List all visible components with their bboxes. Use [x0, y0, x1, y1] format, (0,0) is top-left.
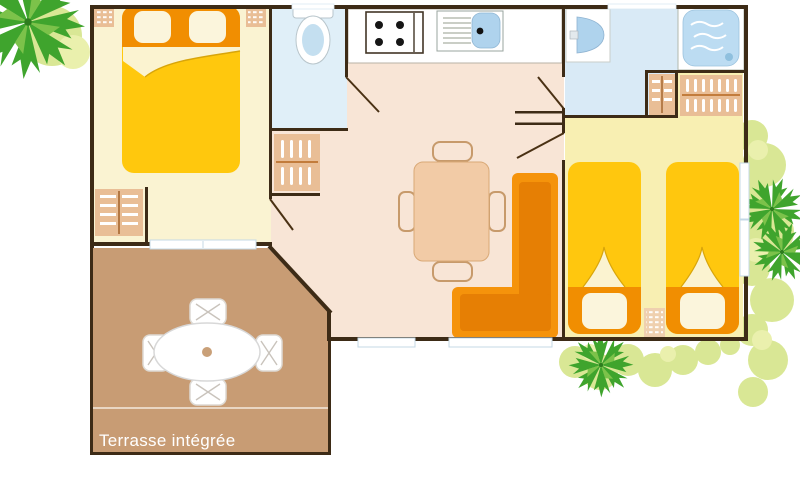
dresser: [95, 189, 143, 236]
twin-bed: [568, 162, 641, 334]
hall-wardrobe: [274, 134, 320, 191]
terrace-label: Terrasse intégrée: [99, 431, 235, 451]
terrace-chair: [190, 299, 226, 325]
kitchen-stove: [366, 12, 423, 53]
shower: [678, 6, 744, 70]
kitchen-sink: [437, 11, 503, 51]
bathroom-cupboard: [649, 74, 675, 115]
dining-table: [414, 162, 489, 261]
nightstand: [644, 308, 665, 338]
washbasin: [566, 9, 610, 62]
twin-bed: [666, 162, 739, 334]
floor-plan: Terrasse intégrée: [0, 0, 800, 480]
twin-bedroom-wardrobe: [680, 75, 742, 116]
floor-plan-drawing: [0, 0, 800, 480]
double-bed: [122, 6, 240, 173]
terrace-chair: [190, 379, 226, 405]
